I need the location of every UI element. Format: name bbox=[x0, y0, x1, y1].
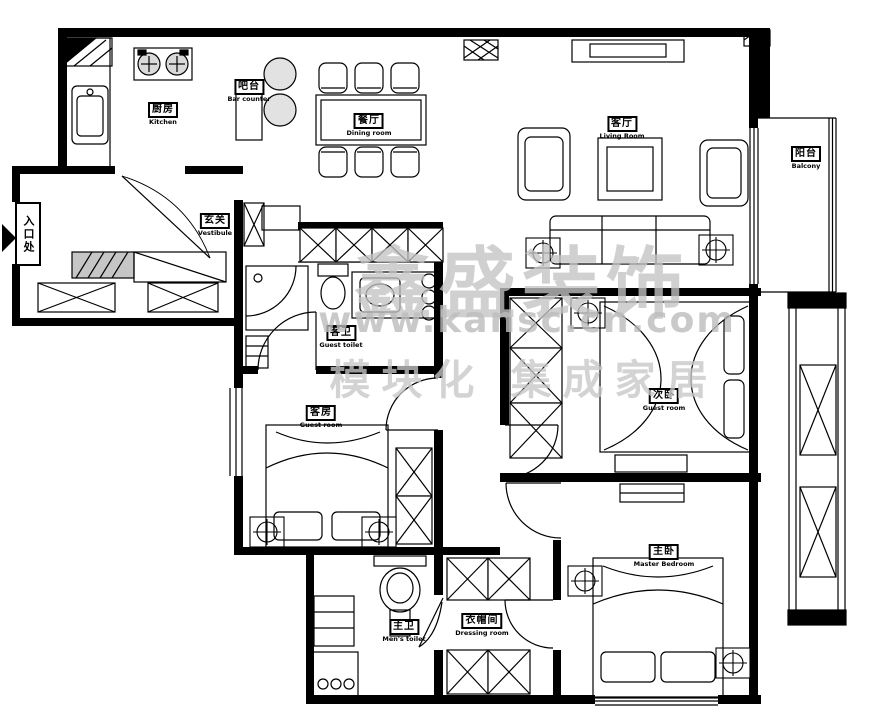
furniture-layer bbox=[2, 30, 846, 698]
floor-plan-canvas bbox=[0, 0, 877, 721]
room-label-kitchen: 厨房Kitchen bbox=[148, 99, 178, 126]
balcony-label-en: Balcony bbox=[791, 163, 821, 170]
entry-door-swing bbox=[122, 176, 210, 258]
dressing-label-en: Dressing room bbox=[455, 630, 508, 637]
room-label-master-bedroom: 主卧Master Bedroom bbox=[634, 541, 695, 568]
kitchen-label-en: Kitchen bbox=[148, 119, 178, 126]
master-bedroom-label-zh: 主卧 bbox=[649, 544, 679, 560]
hall-cabinet bbox=[262, 206, 300, 230]
balcony-label-zh: 阳台 bbox=[791, 146, 821, 162]
shower-stall bbox=[246, 266, 308, 330]
room-label-guest-room-right: 次卧Guest room bbox=[643, 385, 686, 412]
sofa bbox=[550, 216, 710, 264]
shower-head-icon bbox=[254, 274, 262, 282]
tv-cabinet bbox=[572, 40, 684, 62]
master-toilet-label-zh: 主卫 bbox=[389, 619, 419, 635]
guest-bath-door-swing bbox=[258, 312, 316, 370]
floor-plan: 厨房Kitchen 吧台Bar counter 餐厅Dining room 客厅… bbox=[0, 0, 877, 721]
coffee-table bbox=[598, 138, 662, 200]
stove-icon bbox=[134, 48, 192, 80]
room-label-vestibule: 玄关Vestibule bbox=[198, 210, 232, 237]
toilet-icon bbox=[318, 264, 348, 309]
guest-room-right-label-en: Guest room bbox=[643, 405, 686, 412]
dining-label-en: Dining room bbox=[347, 130, 392, 137]
pillow-icon bbox=[724, 316, 744, 374]
vestibule-label-en: Vestibule bbox=[198, 230, 232, 237]
bar-label-zh: 吧台 bbox=[234, 79, 264, 95]
pillow-icon bbox=[724, 380, 744, 438]
bedroom-left-door-swing bbox=[386, 378, 438, 430]
bar-label-en: Bar counter bbox=[227, 96, 270, 103]
room-label-living: 客厅Living Room bbox=[599, 113, 644, 140]
guest-room-left-label-zh: 客房 bbox=[306, 405, 336, 421]
room-label-bar: 吧台Bar counter bbox=[227, 76, 270, 103]
bath-cabinet bbox=[246, 336, 268, 368]
pillow-icon bbox=[661, 652, 715, 682]
pillow-icon bbox=[601, 652, 655, 682]
bed-guest-right bbox=[600, 302, 750, 452]
guest-room-left-label-en: Guest room bbox=[300, 422, 343, 429]
bath-storage bbox=[314, 596, 354, 646]
kitchen-counter bbox=[66, 38, 110, 172]
room-label-guest-room-left: 客房Guest room bbox=[300, 402, 343, 429]
room-label-dressing: 衣帽间Dressing room bbox=[455, 610, 508, 637]
master-toilet-label-en: Men's toilet bbox=[382, 636, 425, 643]
brick-pillar-icon bbox=[464, 40, 498, 60]
washing-machine bbox=[312, 652, 358, 696]
tv-icon bbox=[590, 44, 666, 57]
living-label-zh: 客厅 bbox=[607, 116, 637, 132]
master-bedroom-label-en: Master Bedroom bbox=[634, 561, 695, 568]
kitchen-label-zh: 厨房 bbox=[148, 102, 178, 118]
armchair-icon bbox=[700, 140, 748, 206]
master-door-swing bbox=[506, 483, 561, 538]
faucet-icon bbox=[87, 89, 93, 95]
bed-master bbox=[593, 558, 723, 698]
stair-hatch-icon bbox=[62, 38, 112, 66]
room-label-entrance: 入口处 bbox=[15, 202, 41, 266]
door-mat bbox=[72, 252, 226, 282]
guest-toilet-label-zh: 客卫 bbox=[326, 325, 356, 341]
armchair-icon bbox=[518, 128, 570, 200]
room-label-balcony: 阳台Balcony bbox=[791, 143, 821, 170]
room-label-dining: 餐厅Dining room bbox=[347, 110, 392, 137]
guest-toilet-label-en: Guest toilet bbox=[319, 342, 362, 349]
vestibule-label-zh: 玄关 bbox=[200, 213, 230, 229]
guest-room-right-label-zh: 次卧 bbox=[649, 388, 679, 404]
dressing-door-swing bbox=[505, 600, 553, 648]
entry-arrow-icon bbox=[2, 224, 16, 252]
living-label-en: Living Room bbox=[599, 133, 644, 140]
dining-label-zh: 餐厅 bbox=[354, 113, 384, 129]
dressing-label-zh: 衣帽间 bbox=[462, 613, 503, 629]
bathroom-vanity bbox=[352, 272, 442, 320]
room-label-master-toilet: 主卫Men's toilet bbox=[382, 616, 425, 643]
room-label-guest-toilet: 客卫Guest toilet bbox=[319, 322, 362, 349]
